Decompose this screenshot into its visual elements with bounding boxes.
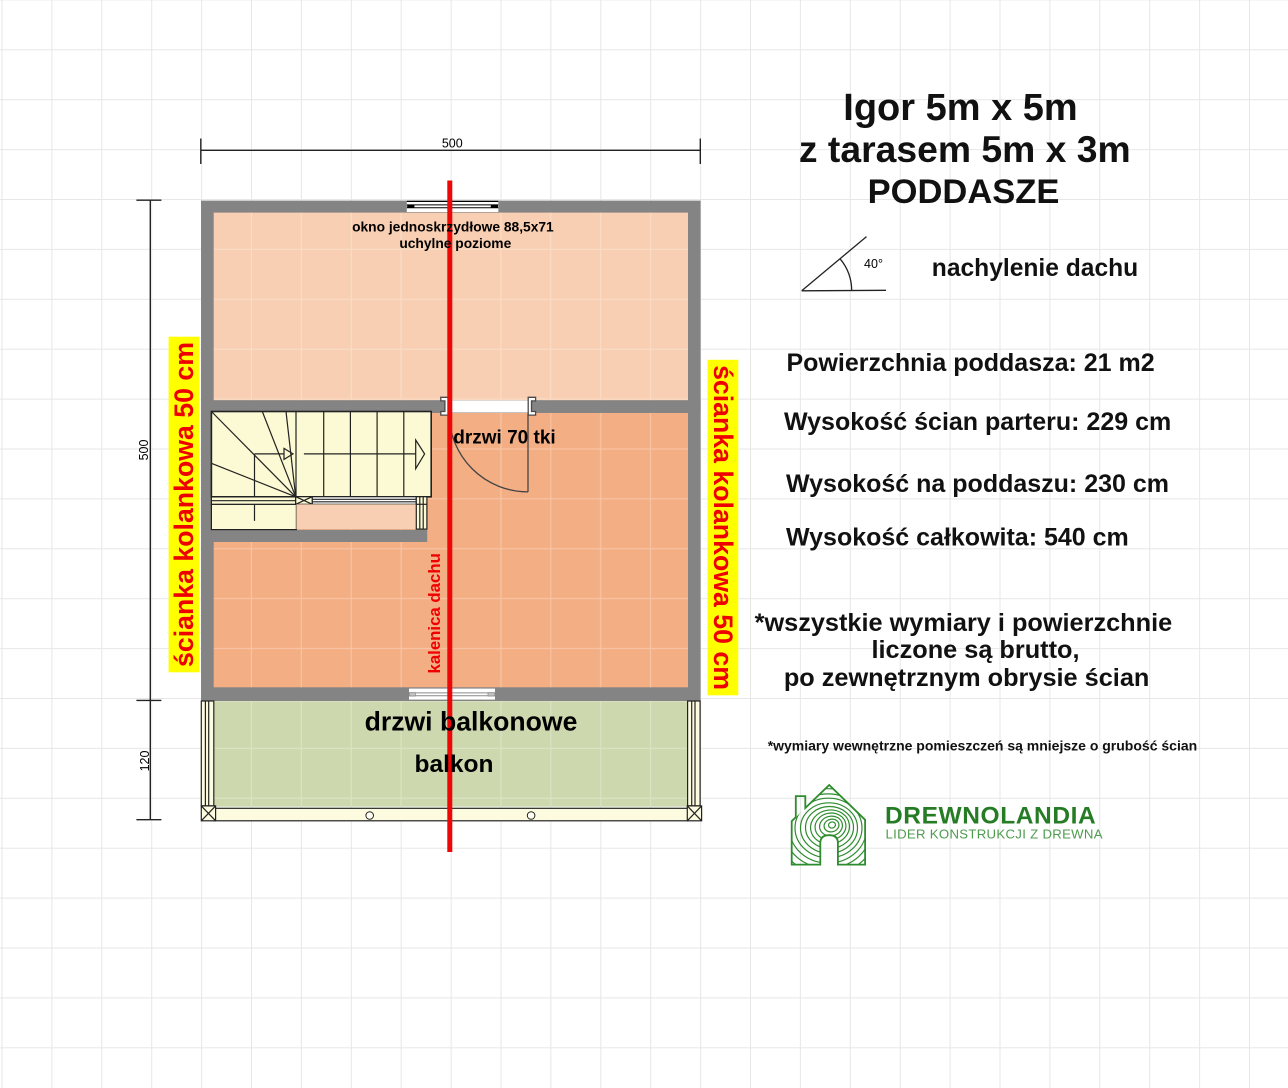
svg-text:DREWNOLANDIA: DREWNOLANDIA [885, 803, 1096, 830]
svg-text:*wszystkie wymiary i powierzch: *wszystkie wymiary i powierzchnie [755, 609, 1173, 637]
svg-text:40°: 40° [864, 257, 883, 271]
svg-text:okno jednoskrzydłowe 88,5x71: okno jednoskrzydłowe 88,5x71 [352, 220, 554, 235]
svg-text:ścianka kolankowa 50 cm: ścianka kolankowa 50 cm [708, 365, 738, 690]
svg-text:*wymiary wewnętrzne pomieszcze: *wymiary wewnętrzne pomieszczeń są mniej… [768, 738, 1197, 754]
svg-text:120: 120 [138, 751, 152, 772]
svg-text:uchylne poziome: uchylne poziome [399, 236, 511, 251]
svg-text:LIDER KONSTRUKCJI Z DREWNA: LIDER KONSTRUKCJI Z DREWNA [886, 827, 1103, 842]
svg-text:500: 500 [137, 440, 151, 461]
svg-text:Wysokość ścian parteru: 229 cm: Wysokość ścian parteru: 229 cm [784, 408, 1171, 436]
svg-text:500: 500 [442, 136, 463, 150]
svg-text:liczone są brutto,: liczone są brutto, [871, 636, 1079, 664]
svg-text:Powierzchnia poddasza: 21 m2: Powierzchnia poddasza: 21 m2 [787, 349, 1155, 377]
svg-text:z tarasem 5m x 3m: z tarasem 5m x 3m [799, 128, 1131, 170]
svg-text:drzwi balkonowe: drzwi balkonowe [365, 707, 578, 737]
svg-text:Wysokość na poddaszu: 230 cm: Wysokość na poddaszu: 230 cm [786, 470, 1169, 498]
svg-text:ścianka kolankowa 50 cm: ścianka kolankowa 50 cm [169, 342, 199, 667]
svg-text:po zewnętrznym obrysie ścian: po zewnętrznym obrysie ścian [784, 664, 1150, 692]
svg-text:nachylenie dachu: nachylenie dachu [932, 255, 1138, 282]
svg-text:balkon: balkon [415, 751, 494, 778]
svg-text:Wysokość całkowita: 540 cm: Wysokość całkowita: 540 cm [786, 524, 1129, 552]
svg-text:drzwi 70 tki: drzwi 70 tki [453, 428, 555, 449]
svg-text:Igor 5m x 5m: Igor 5m x 5m [843, 87, 1077, 129]
svg-text:PODDASZE: PODDASZE [868, 173, 1060, 211]
svg-text:kalenica dachu: kalenica dachu [425, 553, 444, 673]
